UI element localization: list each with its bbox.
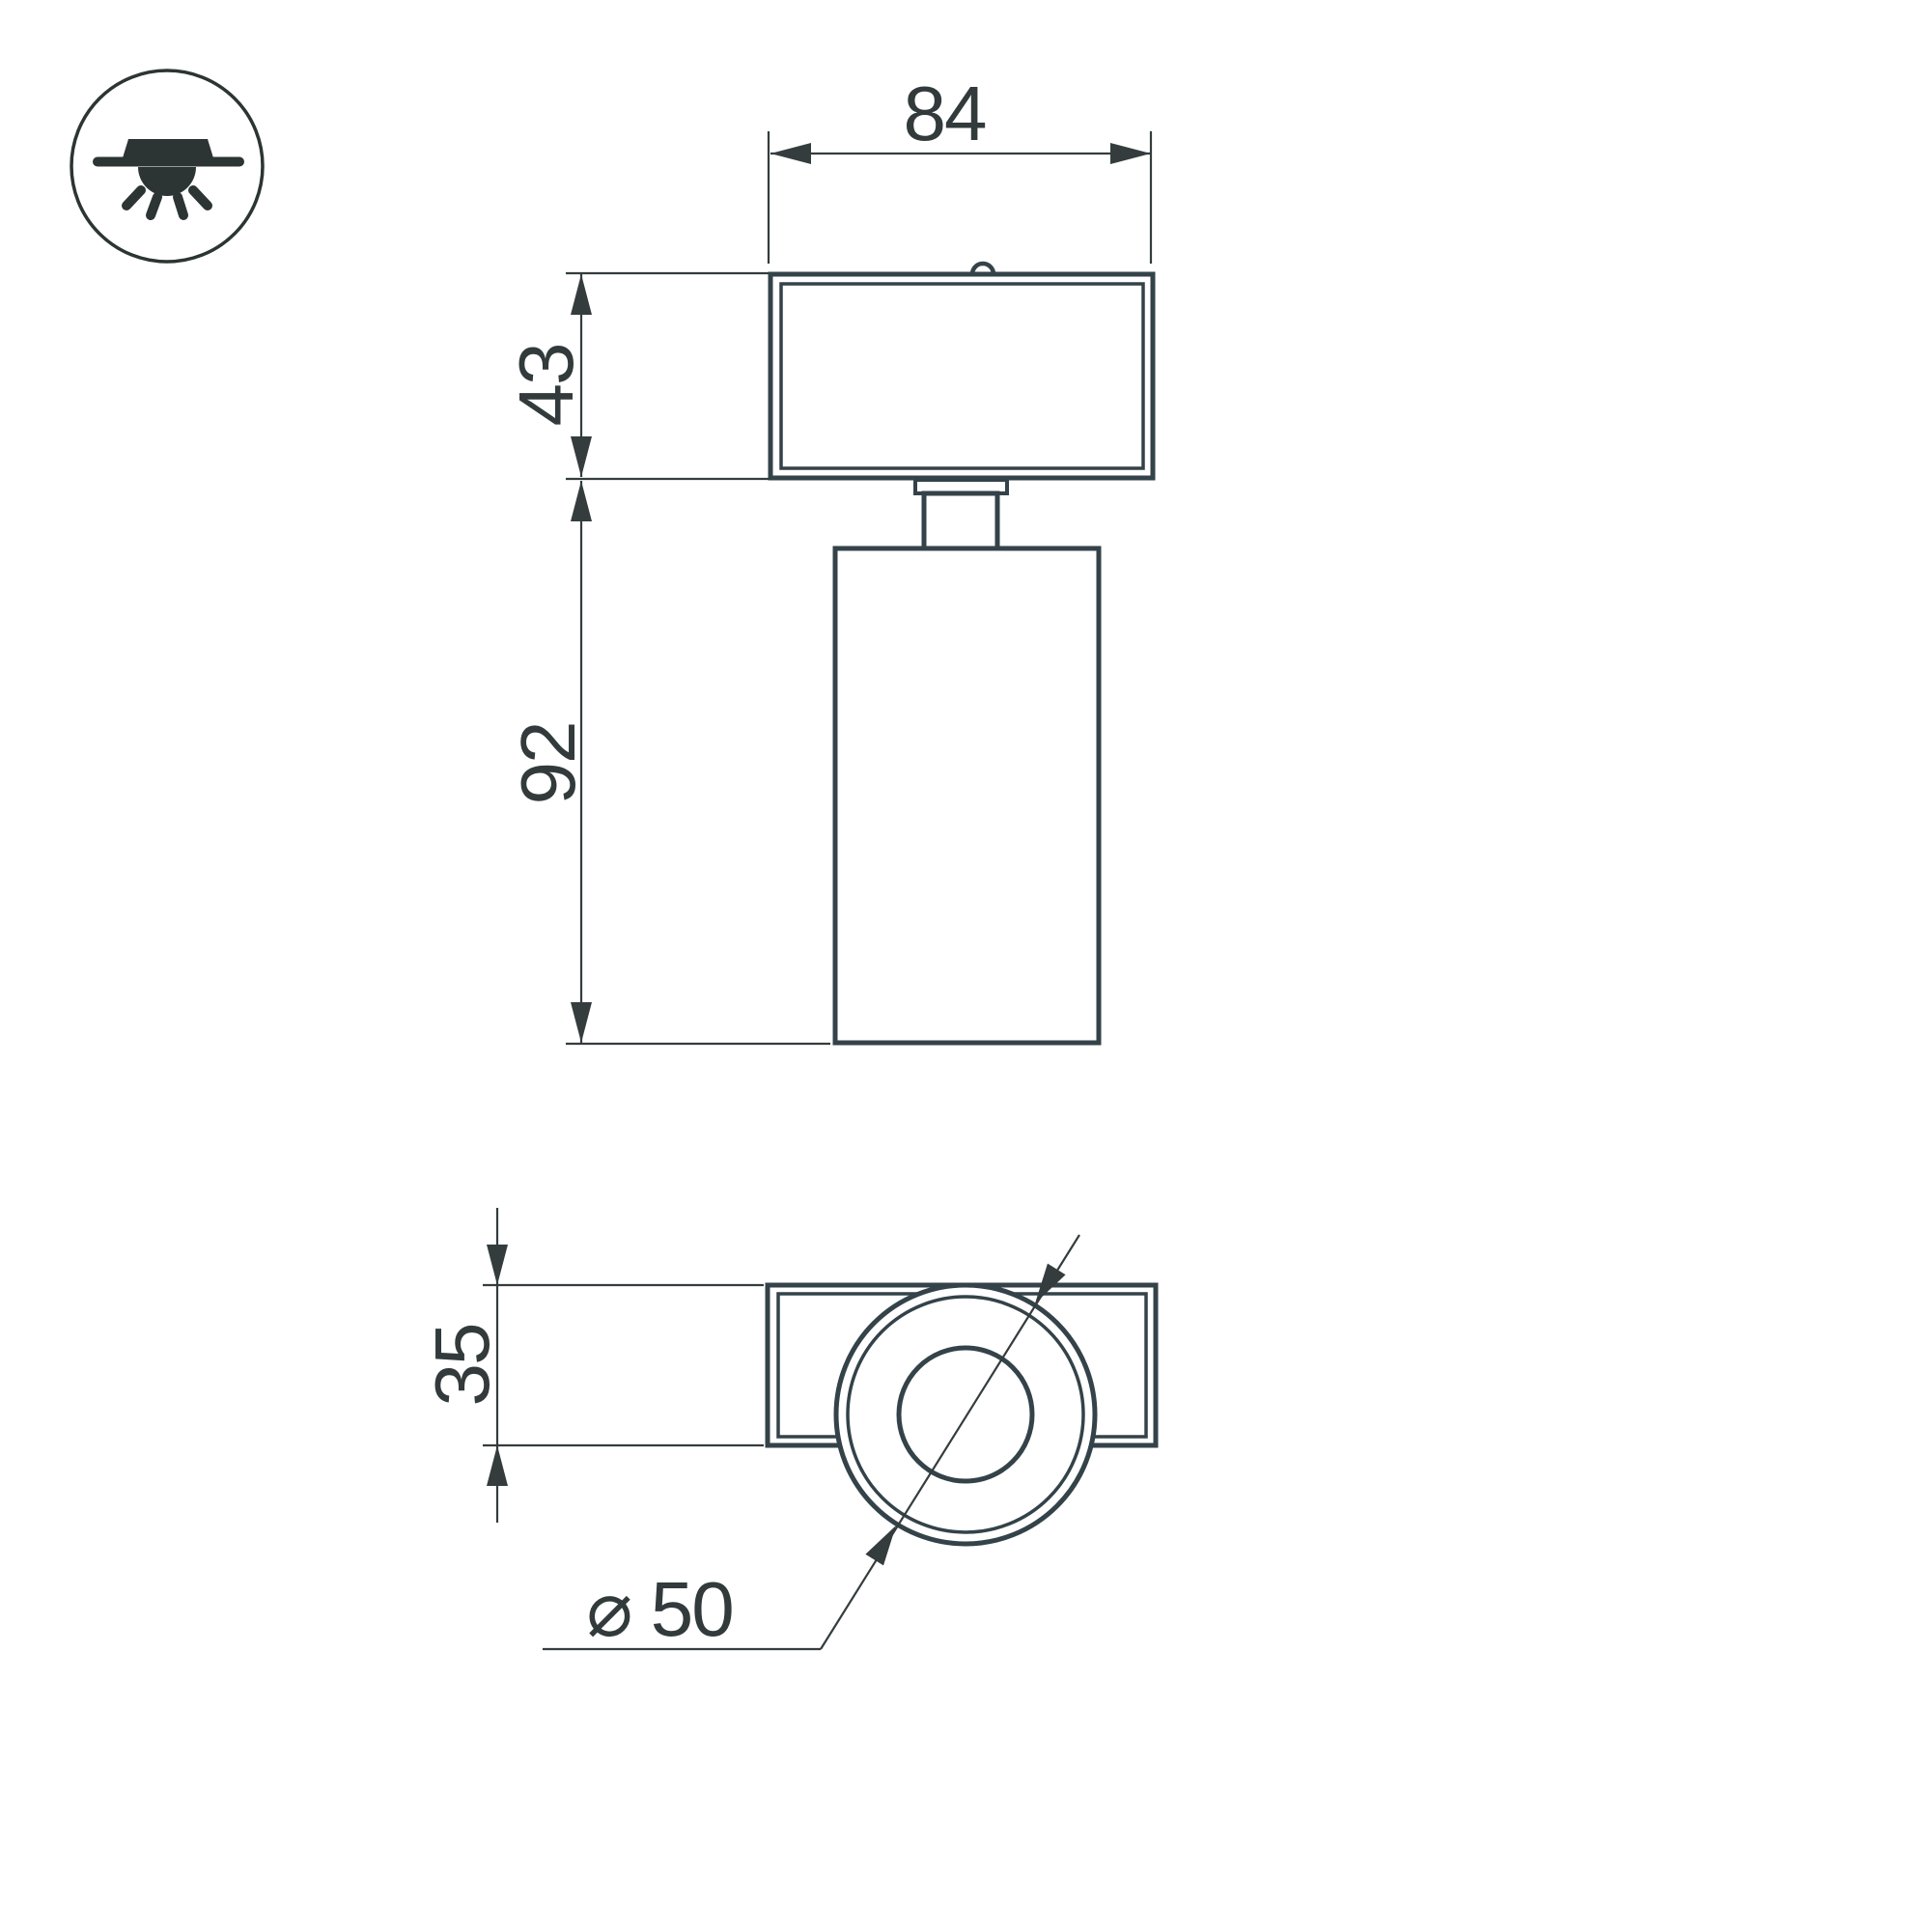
arrowhead-lower	[865, 1526, 896, 1565]
arrowhead-up	[487, 1445, 508, 1486]
dimension-label-diameter: ⌀ 50	[586, 1566, 732, 1652]
surface-ceiling-light-icon	[71, 70, 263, 262]
cylinder-body	[835, 548, 1099, 1043]
plan-view	[768, 1285, 1156, 1544]
dimension-width-84: 84	[769, 70, 1151, 264]
swivel-neck	[924, 493, 997, 548]
dimension-drawing-canvas: 84 43 92	[0, 0, 1932, 1932]
icon-fixture-body	[123, 139, 213, 158]
arrowhead-up	[571, 481, 592, 521]
arrowhead-down	[487, 1245, 508, 1285]
arrowhead-left	[770, 143, 811, 164]
arrowhead-down	[571, 1002, 592, 1043]
dimension-label-bracket-depth: 35	[419, 1325, 505, 1407]
dimension-label-body-length: 92	[505, 723, 591, 805]
technical-drawing: 84 43 92	[0, 0, 1932, 1932]
dimension-depth-35: 35	[419, 1208, 764, 1523]
dimension-label-bracket-height: 43	[503, 345, 589, 427]
driver-box-outer	[770, 274, 1153, 478]
dimension-label-width: 84	[904, 70, 986, 156]
icon-lamp-dome	[138, 167, 196, 196]
dimension-height-43: 43	[503, 273, 770, 479]
arrowhead-right	[1110, 143, 1151, 164]
front-view	[770, 264, 1153, 1043]
arrowhead-up	[571, 274, 592, 315]
body-circle-outer	[836, 1285, 1095, 1544]
arrowhead-down	[571, 436, 592, 477]
dimension-height-92: 92	[505, 481, 830, 1044]
